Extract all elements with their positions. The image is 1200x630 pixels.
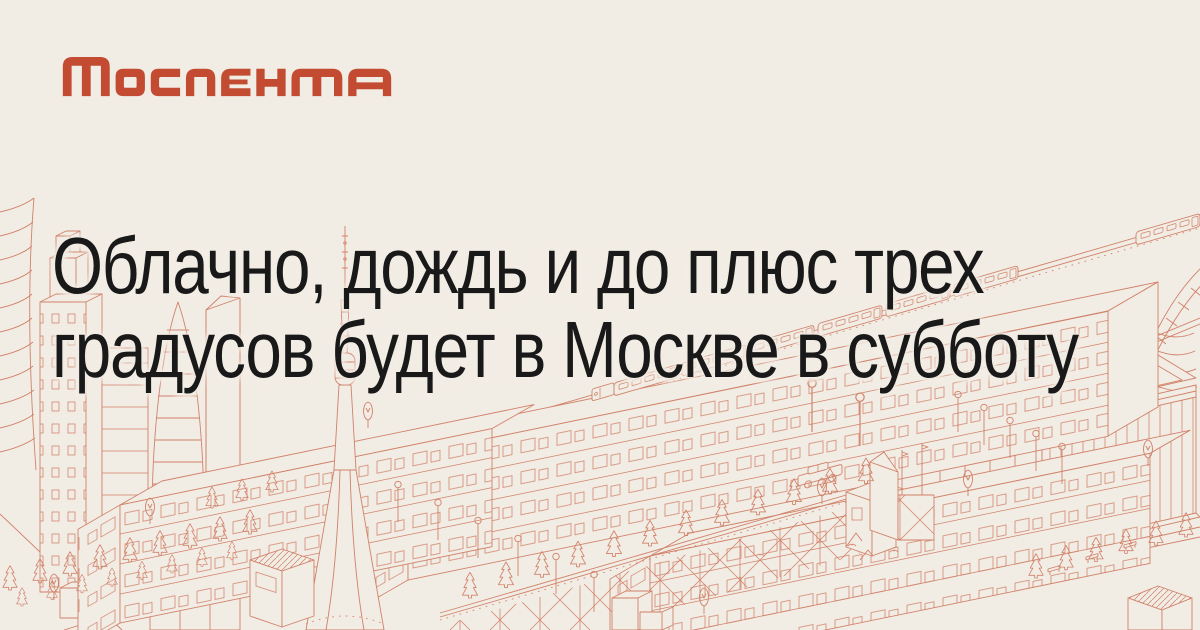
share-card: { "brand": { "name": "Мослента" }, "head… xyxy=(0,0,1200,630)
moslenta-logo: Мослента xyxy=(62,57,392,105)
headline-line-2: градусов будет в Москве в субботу xyxy=(52,308,1078,392)
shed xyxy=(1128,586,1192,630)
moslenta-wordmark xyxy=(63,57,391,96)
headline-line-1: Облачно, дождь и до плюс трех xyxy=(52,224,1078,308)
headline: Облачно, дождь и до плюс трех градусов б… xyxy=(52,224,1078,392)
